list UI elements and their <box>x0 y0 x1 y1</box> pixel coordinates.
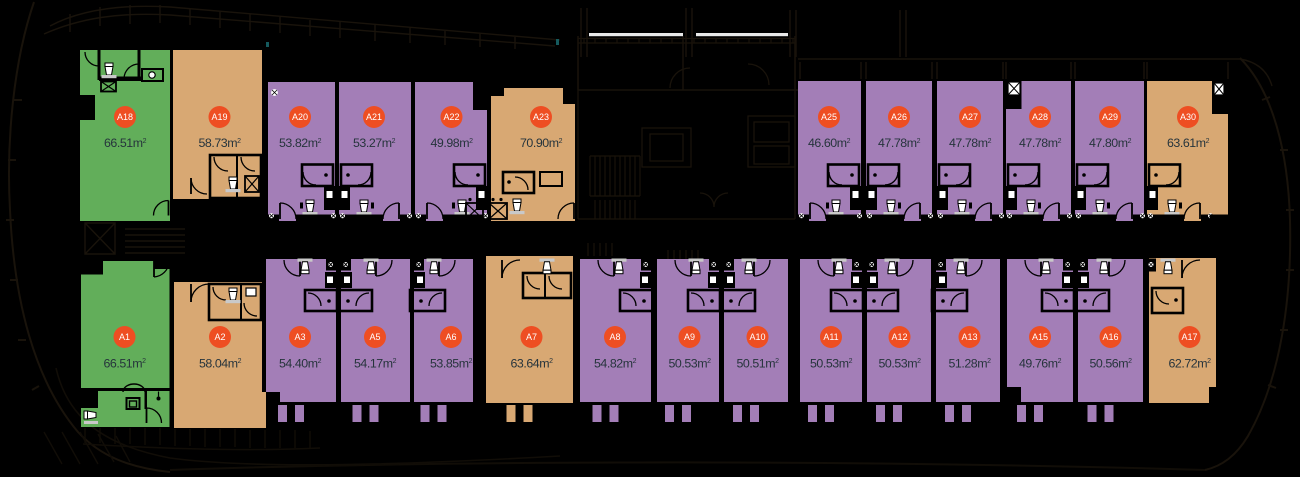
svg-text:50.53m2: 50.53m2 <box>878 356 921 370</box>
svg-text:47.80m2: 47.80m2 <box>1089 136 1132 150</box>
svg-text:62.72m2: 62.72m2 <box>1168 356 1211 370</box>
svg-text:A17: A17 <box>1181 332 1197 342</box>
svg-text:A28: A28 <box>1032 112 1048 122</box>
svg-text:A16: A16 <box>1102 332 1118 342</box>
svg-text:70.90m2: 70.90m2 <box>520 136 563 150</box>
svg-text:53.82m2: 53.82m2 <box>279 136 322 150</box>
svg-text:A30: A30 <box>1180 112 1196 122</box>
svg-text:A3: A3 <box>294 332 305 342</box>
svg-text:A7: A7 <box>526 332 537 342</box>
svg-text:54.17m2: 54.17m2 <box>354 356 397 370</box>
svg-text:A12: A12 <box>891 332 907 342</box>
svg-text:A20: A20 <box>292 112 308 122</box>
svg-text:A29: A29 <box>1102 112 1118 122</box>
svg-text:A23: A23 <box>533 112 549 122</box>
svg-text:58.04m2: 58.04m2 <box>199 356 242 370</box>
svg-text:A25: A25 <box>821 112 837 122</box>
svg-text:54.82m2: 54.82m2 <box>594 356 637 370</box>
svg-text:A13: A13 <box>961 332 977 342</box>
svg-text:63.61m2: 63.61m2 <box>1167 136 1210 150</box>
svg-text:66.51m2: 66.51m2 <box>103 356 146 370</box>
svg-text:A2: A2 <box>214 332 225 342</box>
svg-text:50.53m2: 50.53m2 <box>810 356 853 370</box>
svg-text:47.78m2: 47.78m2 <box>878 136 921 150</box>
svg-text:A10: A10 <box>749 332 765 342</box>
svg-text:49.98m2: 49.98m2 <box>430 136 473 150</box>
svg-text:47.78m2: 47.78m2 <box>949 136 992 150</box>
svg-text:63.64m2: 63.64m2 <box>510 356 553 370</box>
svg-text:A26: A26 <box>891 112 907 122</box>
svg-text:53.85m2: 53.85m2 <box>430 356 473 370</box>
svg-text:A18: A18 <box>117 112 133 122</box>
svg-text:50.51m2: 50.51m2 <box>736 356 779 370</box>
svg-text:53.27m2: 53.27m2 <box>353 136 396 150</box>
svg-text:A6: A6 <box>445 332 456 342</box>
svg-text:50.53m2: 50.53m2 <box>668 356 711 370</box>
svg-text:47.78m2: 47.78m2 <box>1019 136 1062 150</box>
svg-text:A19: A19 <box>211 112 227 122</box>
svg-text:A11: A11 <box>823 332 838 342</box>
svg-text:A5: A5 <box>369 332 380 342</box>
svg-text:46.60m2: 46.60m2 <box>808 136 851 150</box>
svg-text:A22: A22 <box>443 112 459 122</box>
svg-text:51.28m2: 51.28m2 <box>948 356 991 370</box>
svg-text:A9: A9 <box>684 332 695 342</box>
svg-text:A8: A8 <box>609 332 620 342</box>
svg-text:A15: A15 <box>1032 332 1048 342</box>
svg-text:54.40m2: 54.40m2 <box>279 356 322 370</box>
svg-text:58.73m2: 58.73m2 <box>198 136 241 150</box>
svg-text:49.76m2: 49.76m2 <box>1019 356 1062 370</box>
svg-text:A27: A27 <box>962 112 978 122</box>
svg-text:A1: A1 <box>119 332 130 342</box>
svg-text:A21: A21 <box>366 112 382 122</box>
svg-text:50.56m2: 50.56m2 <box>1089 356 1132 370</box>
svg-text:66.51m2: 66.51m2 <box>104 136 147 150</box>
